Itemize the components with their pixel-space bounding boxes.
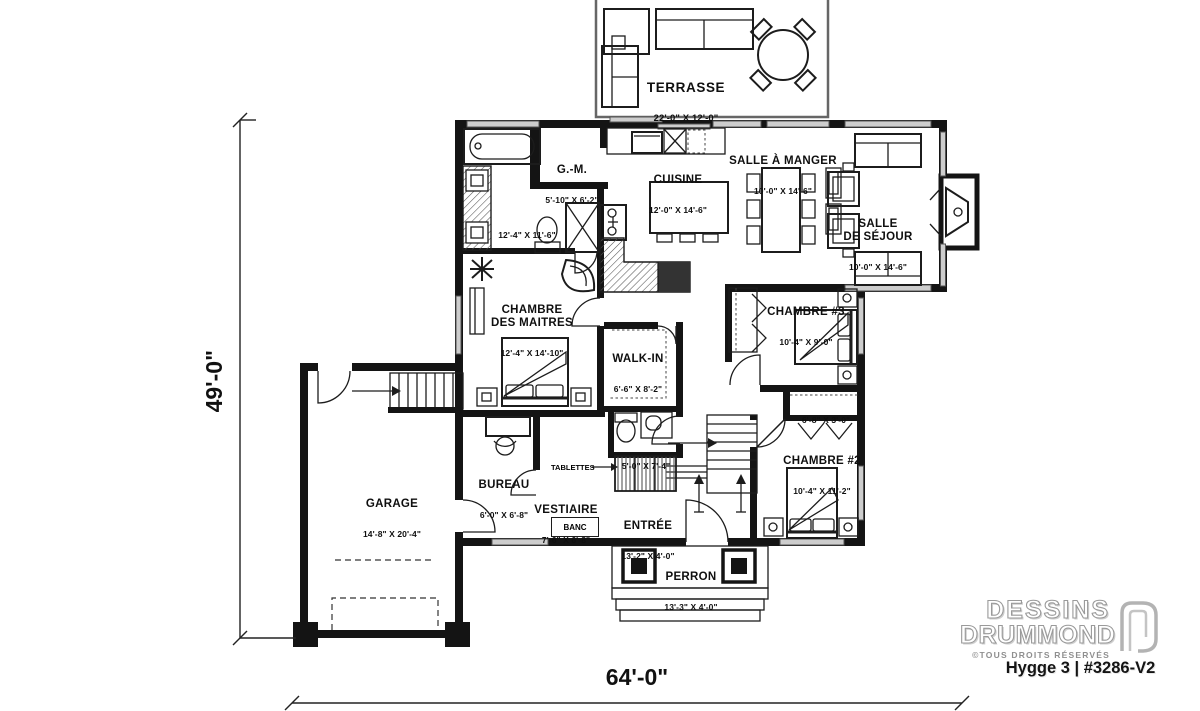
room-label-walk-in: WALK-IN 6'-6" X 8'-2" [612, 335, 663, 412]
logo-line2: DRUMMOND [960, 623, 1110, 648]
garage-door-dashed [332, 560, 438, 630]
room-label-salle-de-bain: 12'-4" X 11'-6" [498, 212, 556, 258]
kitchen-l-counter [600, 238, 690, 292]
bath-vanity-icon [463, 166, 491, 250]
banc-text: BANC [563, 523, 586, 532]
logo-line1: DESSINS [960, 598, 1110, 623]
bathtub-icon [464, 129, 540, 164]
room-label-salle-eau: 5'-0" X 7'-4" [622, 443, 670, 489]
logo-text: DESSINS DRUMMOND [960, 598, 1110, 648]
room-label-salle-a-manger: SALLE À MANGER 10'-0" X 14'-6" [729, 137, 837, 214]
room-label-perron: PERRON 13'-3" X 4'-0" [664, 553, 717, 630]
room-label-chambre-maitres: CHAMBRE DES MAITRES 12'-4" X 14'-10" [491, 286, 573, 376]
overall-width-dimension: 64'-0" [606, 664, 668, 691]
tablettes-label: TABLETTES [551, 463, 595, 472]
room-label-cuisine: CUISINE 12'-0" X 14'-6" [649, 156, 707, 233]
fireplace [930, 176, 977, 248]
banc-label: BANC [551, 517, 599, 537]
room-label-chambre2: CHAMBRE #2 10'-4" X 11'-2" [783, 437, 861, 514]
room-label-chambre3: CHAMBRE #3 10'-4" X 9'-0" [767, 288, 845, 365]
room-label-salle-de-sejour: SALLE DE SÉJOUR 10'-0" X 14'-6" [843, 200, 912, 290]
floor-plan-page: TERRASSE 22'-0" X 12'-0" G.-M. 5'-10" X … [0, 0, 1200, 711]
bath2-fixtures [615, 412, 672, 442]
room-label-terrasse: TERRASSE 22'-0" X 12'-0" [647, 62, 725, 143]
room-label-bureau: BUREAU 6'-0" X 6'-8" [479, 461, 530, 538]
plant-icon [470, 257, 494, 281]
garage-stairs [352, 373, 463, 413]
desk-icon [486, 417, 530, 455]
overall-height-dimension: 49'-0" [201, 350, 228, 412]
room-label-garage: GARAGE 14'-8" X 20'-4" [363, 480, 421, 557]
model-name-text: Hygge 3 | #3286-V2 [973, 659, 1188, 678]
